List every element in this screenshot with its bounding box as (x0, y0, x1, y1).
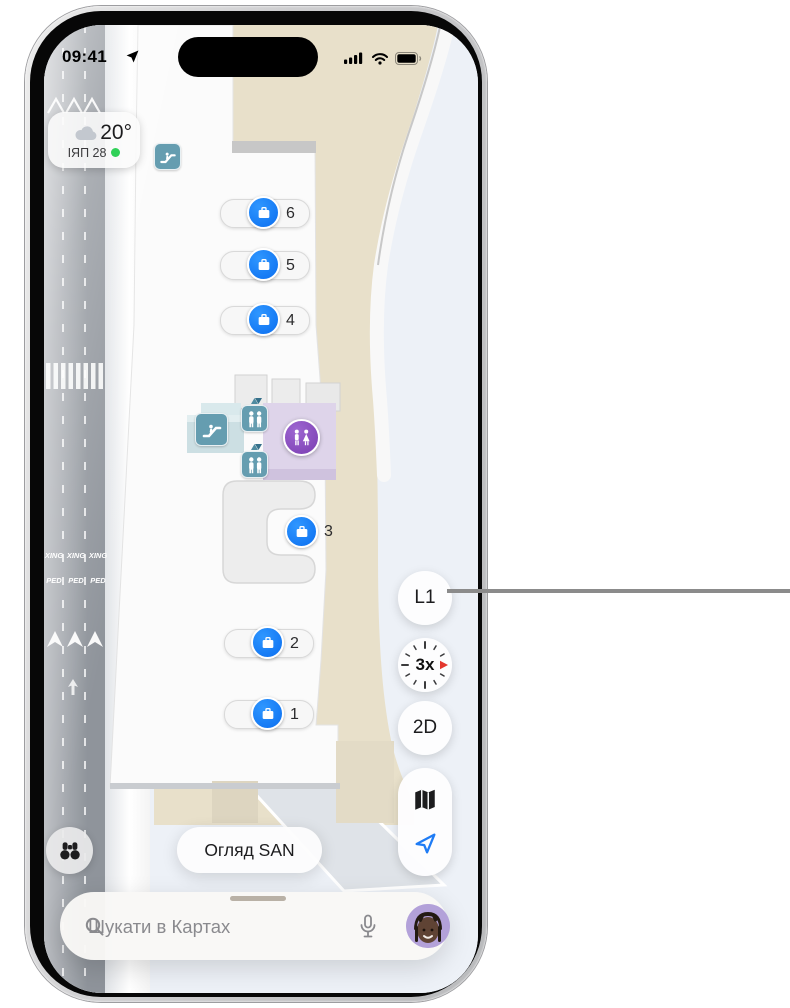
folded-map-icon (412, 788, 438, 812)
view-mode-button[interactable]: 2D (398, 701, 452, 755)
suitcase-icon (256, 257, 272, 273)
wifi-icon (371, 52, 389, 65)
battery-icon (395, 52, 422, 65)
callout-line (447, 589, 790, 593)
elevator-arrows-icon (247, 443, 263, 451)
look-around-button[interactable] (46, 827, 93, 874)
road-text-xing: XING (44, 551, 63, 560)
escalator-marker[interactable] (195, 413, 228, 446)
iphone-bezel: XING XING XING PED PED PED 09:41 (30, 11, 482, 997)
suitcase-icon (260, 635, 276, 651)
road-text-ped: PED (90, 576, 106, 585)
suitcase-icon (260, 706, 276, 722)
weather-widget[interactable]: 20° ІЯП 28 (48, 112, 140, 168)
elevator-people-icon (244, 409, 266, 429)
level-button[interactable]: L1 (398, 571, 452, 625)
elevator-marker[interactable] (241, 443, 268, 478)
restroom-marker[interactable] (283, 419, 320, 456)
memoji-icon (406, 904, 450, 948)
maps-app-screen: XING XING XING PED PED PED 09:41 (44, 25, 478, 993)
suitcase-icon (256, 205, 272, 221)
road-text-ped: PED (46, 576, 62, 585)
location-services-icon (126, 50, 139, 63)
search-input[interactable] (86, 910, 340, 944)
signal-icon (344, 52, 364, 64)
elevator-marker[interactable] (241, 397, 268, 432)
restroom-icon (291, 429, 312, 447)
elevator-people-icon (244, 455, 266, 475)
road-text-xing: XING (88, 551, 108, 560)
temperature: 20° (100, 121, 132, 145)
compass-button[interactable]: 3x (398, 638, 452, 692)
baggage-claim-2[interactable]: 2 (224, 629, 314, 658)
current-location-button[interactable] (413, 831, 438, 856)
air-quality-label: ІЯП 28 (68, 146, 107, 160)
microphone-icon[interactable] (358, 914, 378, 940)
status-time: 09:41 (62, 47, 107, 67)
escalator-marker[interactable] (154, 143, 181, 170)
baggage-claim-4[interactable]: 4 (220, 306, 310, 335)
binoculars-icon (57, 839, 83, 863)
road-text-ped: PED (68, 576, 84, 585)
suitcase-icon (294, 524, 310, 540)
baggage-claim-6[interactable]: 6 (220, 199, 310, 228)
road-text-xing: XING (66, 551, 86, 560)
dynamic-island (178, 37, 318, 77)
elevator-arrows-icon (247, 397, 263, 405)
cloud-icon (74, 125, 98, 141)
search-bar[interactable] (60, 892, 448, 960)
compass-needle-icon (440, 661, 448, 669)
map-mode-button[interactable] (412, 788, 438, 812)
air-quality-dot (111, 148, 120, 157)
drag-handle[interactable] (230, 896, 286, 901)
baggage-claim-3[interactable]: 3 (285, 515, 333, 548)
baggage-claim-1[interactable]: 1 (224, 700, 314, 729)
map-controls-pill (398, 768, 452, 876)
location-arrow-icon (413, 831, 438, 856)
profile-avatar[interactable] (406, 904, 450, 948)
iphone-frame: XING XING XING PED PED PED 09:41 (25, 6, 487, 1002)
overview-button[interactable]: Огляд SAN (177, 827, 322, 873)
escalator-icon (158, 147, 178, 167)
baggage-claim-5[interactable]: 5 (220, 251, 310, 280)
escalator-icon (200, 418, 224, 442)
suitcase-icon (256, 312, 272, 328)
